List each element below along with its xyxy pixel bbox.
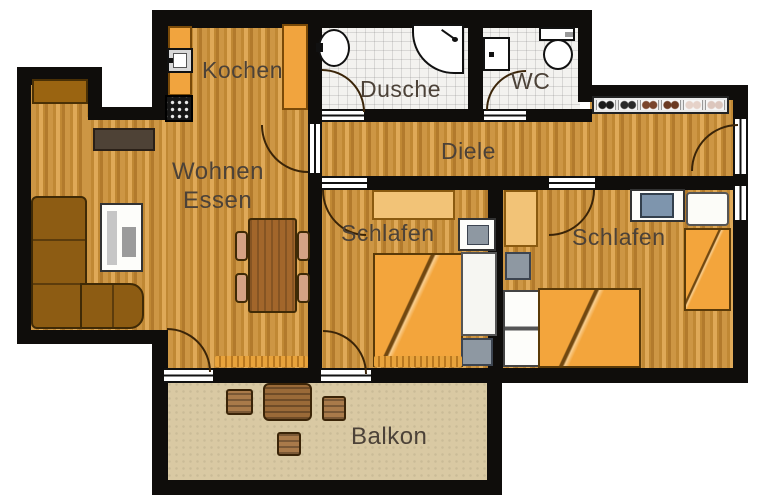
wardrobe-bedroom-right	[504, 190, 538, 247]
wall-living-bedroom-divider	[308, 176, 322, 383]
washing-machine	[483, 37, 510, 71]
bed-pillows-bedroom-right	[503, 290, 541, 367]
bathroom-faucet-icon	[316, 43, 323, 52]
tv-cabinet	[100, 203, 143, 272]
wall-balcony-right	[487, 368, 502, 495]
radiator-bedroom-middle	[374, 356, 462, 367]
bedside-table-top-item	[467, 225, 489, 245]
single-bed-bedroom-right	[684, 228, 731, 311]
room-label-bedroom-right: Schlafen	[572, 224, 666, 251]
monitor-icon	[640, 193, 674, 218]
double-bed-bedroom-middle	[373, 253, 463, 367]
shoe-rack	[592, 96, 729, 114]
room-label-living: Wohnen	[172, 158, 264, 186]
balcony-table	[263, 383, 312, 421]
balcony-chair	[322, 396, 346, 421]
balcony-chair	[277, 432, 301, 456]
balcony-chair	[226, 389, 253, 415]
cabinet-top-left	[32, 79, 88, 104]
kitchen-counter-right	[282, 24, 308, 110]
shoe-pair-icon	[661, 100, 681, 110]
dining-chair	[297, 273, 310, 303]
floor-plan: Kochen Dusche WC Diele Wohnen Essen Schl…	[0, 0, 759, 500]
wc-door-threshold	[484, 109, 526, 122]
sofa-vertical	[31, 196, 87, 329]
nightstand-bedroom-middle	[461, 338, 493, 366]
kitchen-faucet-icon	[167, 58, 173, 63]
living-door-threshold	[308, 124, 322, 173]
room-label-hallway: Diele	[441, 138, 496, 165]
wardrobe-bedroom-middle	[372, 190, 455, 220]
toilet-bowl	[543, 39, 573, 70]
room-label-bedroom-middle: Schlafen	[341, 220, 435, 247]
stove	[165, 95, 193, 122]
wall-hallway-bedrooms	[308, 176, 748, 190]
bedside-table-top	[458, 218, 496, 251]
shoe-pair-icon	[705, 100, 725, 110]
wall-left	[17, 67, 31, 344]
dining-chair	[235, 231, 248, 261]
radiator-living	[215, 356, 308, 367]
sideboard	[93, 128, 155, 151]
sofa-horizontal	[80, 283, 144, 329]
dining-table	[248, 218, 297, 313]
wall-shower-wc-divider	[468, 10, 483, 122]
kitchen-sink-basin	[173, 53, 187, 68]
shoe-pair-icon	[596, 100, 616, 110]
shower-head-dot	[452, 37, 458, 42]
wall-living-bottom	[17, 330, 168, 344]
kitchen-sink	[167, 48, 193, 73]
room-label-dining: Essen	[183, 187, 252, 215]
dining-chair	[297, 231, 310, 261]
shoe-pair-icon	[618, 100, 638, 110]
nightstand-bedroom-right	[505, 252, 531, 280]
room-label-shower: Dusche	[360, 76, 441, 103]
dining-chair	[235, 273, 248, 303]
window-right-wall	[733, 186, 748, 220]
washing-machine-dot	[489, 52, 494, 57]
wall-balcony-bottom	[152, 480, 502, 495]
tv-cabinet-item	[122, 227, 136, 257]
bedroom-right-door-threshold	[549, 176, 595, 190]
double-bed-bedroom-right	[538, 288, 641, 368]
room-label-kitchen: Kochen	[202, 57, 283, 84]
room-label-wc: WC	[511, 68, 550, 95]
mattress-white	[461, 252, 497, 336]
desk-bedroom-right	[630, 189, 685, 222]
wall-south	[152, 368, 748, 383]
tv-cabinet-shelf	[107, 211, 117, 265]
bedroom-middle-door-threshold	[322, 176, 367, 190]
wall-top	[152, 10, 592, 28]
shoe-pair-icon	[683, 100, 703, 110]
wall-step-horizontal	[88, 107, 168, 120]
room-label-balcony: Balkon	[351, 423, 427, 451]
wall-balcony-left	[152, 330, 168, 495]
toilet-flush-button	[565, 32, 573, 37]
shoe-pair-icon	[640, 100, 660, 110]
single-bed-pillow	[686, 192, 729, 226]
